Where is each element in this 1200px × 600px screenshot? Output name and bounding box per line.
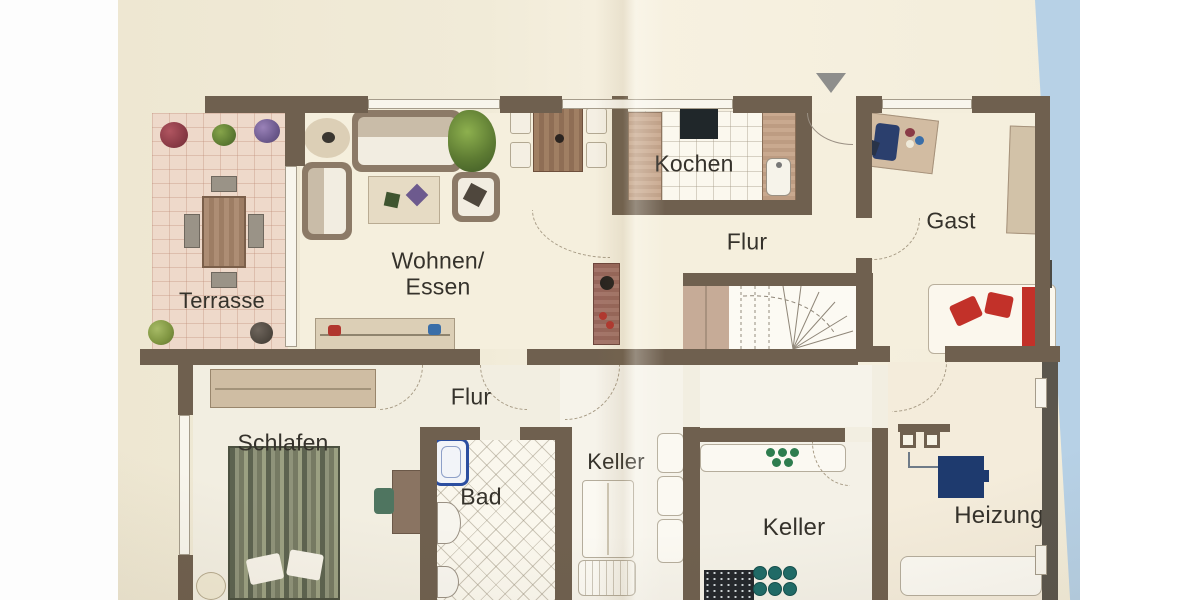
wall [285,96,305,166]
double-bed [228,446,340,600]
bedroom-wardrobe [210,369,376,408]
plant-large [448,110,496,172]
terrace-chair [184,214,200,248]
light-well [1035,378,1047,408]
room-label-keller-1: Keller [587,449,644,475]
stove [680,104,718,139]
room-label-gast: Gast [926,208,975,235]
wall [683,273,873,286]
bottle-green [784,458,793,467]
dining-chair [586,108,607,134]
storage-drum-teal [783,566,797,580]
window [562,99,733,109]
wall [555,427,572,600]
wall [437,427,480,440]
plant-pot-green [212,124,236,146]
storage-drum-teal [783,582,797,596]
armchair [452,172,500,222]
boiler [938,456,984,498]
chimney-flue [924,432,940,448]
wall [858,273,873,349]
room-label-wohnen: Wohnen/ [391,248,484,275]
wall [700,428,845,442]
right-margin [1080,0,1200,600]
kitchen-sink [766,158,791,196]
dining-chair [586,142,607,168]
bathtub [433,438,469,486]
plant-pot-dark [250,322,273,344]
wall [856,346,890,362]
room-label-keller-2: Keller [763,514,826,542]
wall [612,200,796,215]
bottle-green [766,448,775,457]
room-label-kochen: Kochen [654,151,733,178]
room-label-bad: Bad [460,484,502,511]
terrace-chair [211,176,237,192]
bottle-green [790,448,799,457]
terrace-chair [211,272,237,288]
wall [945,346,1060,362]
wall [683,427,700,600]
left-margin [0,0,118,600]
dining-table [533,104,583,172]
sofa-side [302,162,352,240]
dining-chair [510,142,531,168]
hall-dresser [593,263,620,345]
wall [612,96,628,208]
nightstand-lamp [196,572,226,600]
plant-pot-purple [254,119,280,143]
cellar-shelf [657,519,684,563]
wall [856,113,872,218]
storage-drum-teal [753,566,767,580]
window [368,99,500,109]
wall [500,96,562,113]
wall [178,365,193,415]
room-label-flur-og: Flur [727,229,767,256]
wall [856,96,882,113]
room-label-terrasse: Terrasse [179,288,265,314]
bottle-green [778,448,787,457]
wall [520,427,560,440]
storage-crate [704,570,754,600]
room-label-heizung: Heizung [954,502,1043,530]
storage-drum-teal [768,582,782,596]
sofa-main [352,110,462,172]
heizung-shelf [900,556,1042,596]
plant-pot-lightgreen [148,320,174,345]
boiler-pipe [908,452,942,468]
terrace-chair [248,214,264,248]
keller2-anteroom-floor [700,365,872,427]
wall [420,427,437,600]
rug-decor [322,132,335,143]
guest-desk-clutter [915,136,924,145]
wall [1035,96,1050,350]
entrance-marker-icon [816,73,846,93]
wall [527,349,858,365]
bottle-green [772,458,781,467]
wall [872,428,888,600]
guest-desk-clutter [906,140,914,148]
room-label-schlafen: Schlafen [237,430,328,457]
bedroom-desk [392,470,422,534]
light-well [1035,545,1047,575]
terrace-table [202,196,246,268]
cellar-shelf [657,476,684,516]
window [179,415,190,555]
staircase [683,286,859,349]
cellar-shelf [657,433,684,473]
sideboard [315,318,455,352]
window [882,99,972,109]
chimney-flue [900,432,916,448]
bed-pillow [286,549,324,581]
storage-drum-teal [753,582,767,596]
wall [140,349,480,365]
bedroom-chair-green [374,488,394,514]
floorplan-photo: Terrasse Wohnen/ Essen Kochen Flur Gast … [0,0,1200,600]
room-label-flur-ug: Flur [451,384,491,411]
window-terrace-door [285,166,297,347]
plant-pot-red [160,122,188,148]
wall [178,555,193,600]
guest-desk-clutter [905,128,915,137]
cellar-cabinet [582,480,634,558]
storage-drum-teal [768,566,782,580]
radiator [578,560,636,596]
wall [972,96,1040,113]
wall [796,96,812,215]
coffee-table [368,176,440,224]
chimney-block [898,424,950,432]
room-label-essen: Essen [406,274,471,301]
